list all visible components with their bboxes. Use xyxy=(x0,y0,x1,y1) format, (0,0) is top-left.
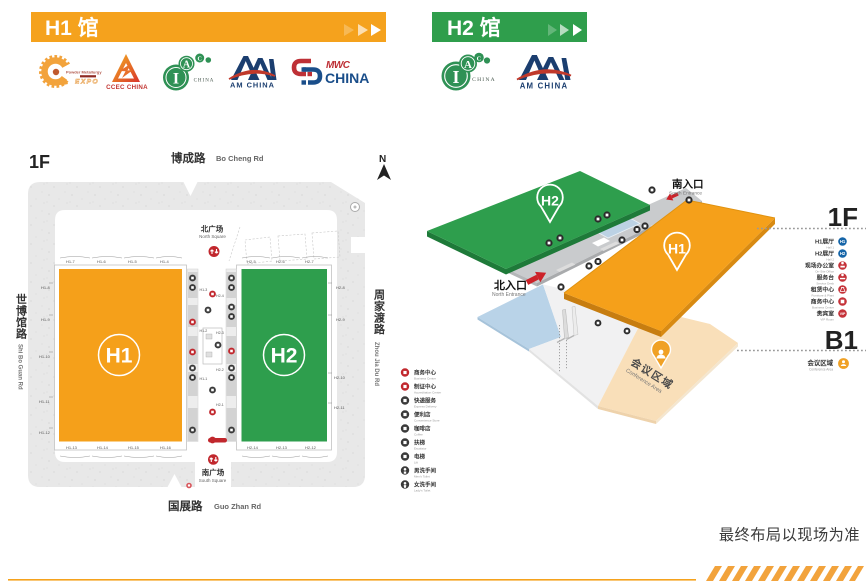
svg-text:H2-8: H2-8 xyxy=(336,285,345,290)
svg-text:H1-13: H1-13 xyxy=(66,445,78,450)
svg-text:South Square: South Square xyxy=(199,478,227,483)
svg-text:H2: H2 xyxy=(271,345,298,368)
svg-text:H1-7: H1-7 xyxy=(66,259,75,264)
svg-text:North Square: North Square xyxy=(199,234,226,239)
svg-text:现场办公室: 现场办公室 xyxy=(805,261,834,269)
svg-text:北广场: 北广场 xyxy=(201,224,224,234)
svg-text:North Entrance: North Entrance xyxy=(492,292,526,298)
svg-text:Powder Metallurgy: Powder Metallurgy xyxy=(66,70,102,75)
svg-text:制证中心: 制证中心 xyxy=(414,383,437,391)
svg-text:South Entrance: South Entrance xyxy=(669,191,702,197)
svg-text:H2-4: H2-4 xyxy=(216,294,224,298)
svg-text:服务台: 服务台 xyxy=(817,273,835,281)
svg-text:Shi Bo Guan Rd: Shi Bo Guan Rd xyxy=(17,344,23,390)
svg-text:南广场: 南广场 xyxy=(202,467,225,477)
svg-text:商务中心: 商务中心 xyxy=(811,297,834,305)
svg-text:C: C xyxy=(477,55,482,62)
svg-text:Conference Area: Conference Area xyxy=(809,368,833,372)
svg-text:H2-11: H2-11 xyxy=(334,405,345,410)
svg-text:H2-13: H2-13 xyxy=(276,445,288,450)
svg-text:Furniture & Plant: Furniture & Plant xyxy=(811,293,834,297)
svg-text:A: A xyxy=(183,60,191,71)
svg-text:H2-1: H2-1 xyxy=(216,403,224,407)
svg-text:H1展厅: H1展厅 xyxy=(815,237,834,245)
svg-text:1F: 1F xyxy=(29,152,50,172)
svg-text:H1-12: H1-12 xyxy=(39,430,51,435)
svg-text:最终布局以现场为准: 最终布局以现场为准 xyxy=(719,527,860,544)
svg-text:Lift: Lift xyxy=(414,461,418,465)
svg-text:南入口: 南入口 xyxy=(672,178,704,191)
svg-text:1F: 1F xyxy=(828,202,858,232)
svg-text:Lady's Toilet: Lady's Toilet xyxy=(414,489,431,493)
svg-text:H1: H1 xyxy=(668,241,686,257)
svg-text:Guo Zhan Rd: Guo Zhan Rd xyxy=(214,502,261,511)
svg-text:H1-10: H1-10 xyxy=(39,354,51,359)
svg-text:CHINA: CHINA xyxy=(325,70,369,86)
svg-text:H2-6: H2-6 xyxy=(276,259,285,264)
svg-text:H2-2: H2-2 xyxy=(216,368,224,372)
svg-text:H2-3: H2-3 xyxy=(216,331,224,335)
svg-text:On-Site Office: On-Site Office xyxy=(815,269,834,273)
svg-text:VIP: VIP xyxy=(840,312,846,316)
svg-text:CHINA: CHINA xyxy=(194,79,215,84)
svg-text:Hall 1: Hall 1 xyxy=(826,245,834,249)
svg-text:H2-5: H2-5 xyxy=(247,259,256,264)
svg-text:快递服务: 快递服务 xyxy=(413,397,437,405)
svg-text:商务中心: 商务中心 xyxy=(414,369,437,377)
svg-text:EXPO: EXPO xyxy=(75,79,99,86)
svg-text:H1: H1 xyxy=(106,345,133,368)
svg-text:H2-12: H2-12 xyxy=(305,445,317,450)
svg-text:男洗手间: 男洗手间 xyxy=(414,467,437,475)
svg-text:国展路: 国展路 xyxy=(168,499,203,513)
svg-text:租赁中心: 租赁中心 xyxy=(811,285,834,293)
svg-text:电梯: 电梯 xyxy=(414,453,426,461)
svg-text:AM CHINA: AM CHINA xyxy=(230,81,275,90)
svg-text:H1-6: H1-6 xyxy=(97,259,106,264)
svg-text:H1-5: H1-5 xyxy=(128,259,137,264)
svg-text:H1-3: H1-3 xyxy=(200,288,208,292)
svg-text:H1-15: H1-15 xyxy=(128,445,140,450)
svg-text:H1-9: H1-9 xyxy=(41,317,50,322)
svg-text:H2-10: H2-10 xyxy=(334,375,346,380)
svg-text:Accreditation Center: Accreditation Center xyxy=(414,391,441,395)
svg-text:Business Center: Business Center xyxy=(812,305,834,309)
svg-text:H1-14: H1-14 xyxy=(97,445,109,450)
svg-text:I: I xyxy=(452,67,459,87)
svg-text:Service Desk: Service Desk xyxy=(816,281,834,285)
svg-text:Express Delivery: Express Delivery xyxy=(414,405,437,409)
svg-text:H2: H2 xyxy=(840,251,846,256)
svg-text:H1-8: H1-8 xyxy=(41,285,50,290)
svg-text:H1-16: H1-16 xyxy=(160,445,172,450)
svg-text:H1-1: H1-1 xyxy=(200,377,208,381)
svg-text:H2-7: H2-7 xyxy=(305,259,314,264)
svg-text:H2-14: H2-14 xyxy=(247,445,259,450)
svg-text:扶梯: 扶梯 xyxy=(414,439,426,447)
svg-text:Men's Toilet: Men's Toilet xyxy=(414,475,430,479)
svg-text:贵宾室: 贵宾室 xyxy=(817,309,835,317)
svg-text:北入口: 北入口 xyxy=(494,278,527,292)
svg-text:CHINA: CHINA xyxy=(472,77,496,83)
svg-text:H1-11: H1-11 xyxy=(39,399,50,404)
svg-text:Escalator: Escalator xyxy=(414,447,427,451)
svg-text:H1-2: H1-2 xyxy=(200,329,208,333)
svg-text:会议区域: 会议区域 xyxy=(807,358,833,367)
svg-text:周家渡路: 周家渡路 xyxy=(374,289,386,337)
svg-text:Hall 2: Hall 2 xyxy=(826,257,834,261)
svg-text:Convenience Store: Convenience Store xyxy=(414,419,440,423)
svg-text:Business Center: Business Center xyxy=(414,377,436,381)
svg-text:Bo Cheng Rd: Bo Cheng Rd xyxy=(216,154,264,163)
svg-text:H1-4: H1-4 xyxy=(160,259,169,264)
svg-text:AM CHINA: AM CHINA xyxy=(520,82,569,91)
svg-text:CCEC CHINA: CCEC CHINA xyxy=(106,84,148,91)
svg-text:Zhou Jia Du Rd: Zhou Jia Du Rd xyxy=(373,342,379,386)
svg-text:A: A xyxy=(464,59,472,71)
svg-text:咖啡店: 咖啡店 xyxy=(414,425,431,433)
svg-text:Coffee: Coffee xyxy=(414,433,423,437)
svg-text:H1: H1 xyxy=(840,239,846,244)
svg-text:H2-9: H2-9 xyxy=(336,317,345,322)
svg-text:博成路: 博成路 xyxy=(171,151,206,165)
svg-text:H1 馆: H1 馆 xyxy=(45,16,99,40)
svg-text:世博馆路: 世博馆路 xyxy=(16,292,28,341)
svg-text:C: C xyxy=(198,57,202,63)
svg-text:VIP Room: VIP Room xyxy=(820,317,834,321)
svg-text:H2: H2 xyxy=(541,193,559,209)
svg-text:I: I xyxy=(173,71,179,88)
svg-text:H2展厅: H2展厅 xyxy=(815,249,834,257)
svg-text:N: N xyxy=(379,154,386,165)
svg-text:便利店: 便利店 xyxy=(414,411,431,419)
svg-text:女洗手间: 女洗手间 xyxy=(414,481,437,489)
svg-text:H2 馆: H2 馆 xyxy=(447,16,501,40)
